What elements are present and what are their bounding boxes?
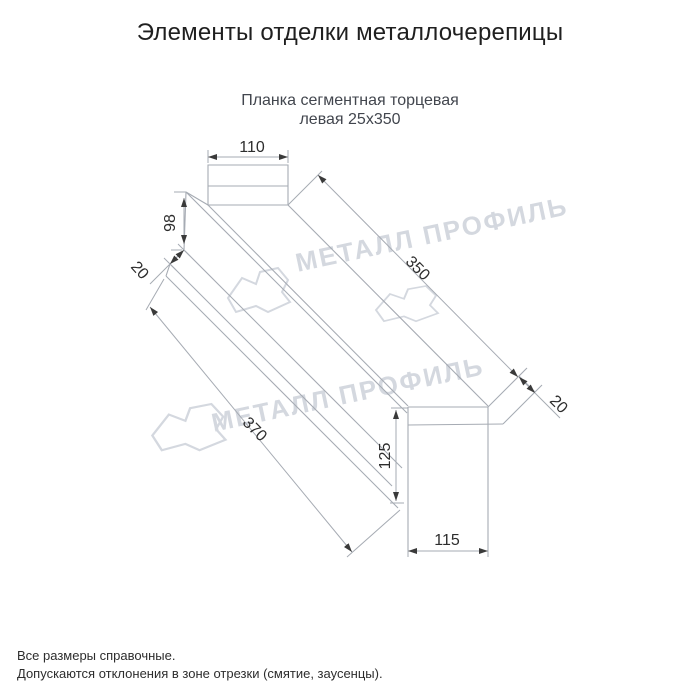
dim-label-left-height: 98 bbox=[162, 214, 180, 232]
dim-label-right-height: 125 bbox=[377, 443, 395, 470]
page: Элементы отделки металлочерепицы Планка … bbox=[0, 0, 700, 700]
part-outline bbox=[166, 165, 542, 550]
footnote-line1: Все размеры справочные. bbox=[17, 648, 175, 663]
technical-drawing bbox=[0, 0, 700, 700]
dimension-lines bbox=[150, 157, 560, 552]
footnote-line2: Допускаются отклонения в зоне отрезки (с… bbox=[17, 666, 383, 681]
extension-lines bbox=[146, 150, 488, 557]
dim-label-bottom-width: 115 bbox=[434, 532, 460, 550]
dim-label-top-width: 110 bbox=[239, 139, 265, 157]
metall-profil-logo bbox=[152, 268, 438, 450]
